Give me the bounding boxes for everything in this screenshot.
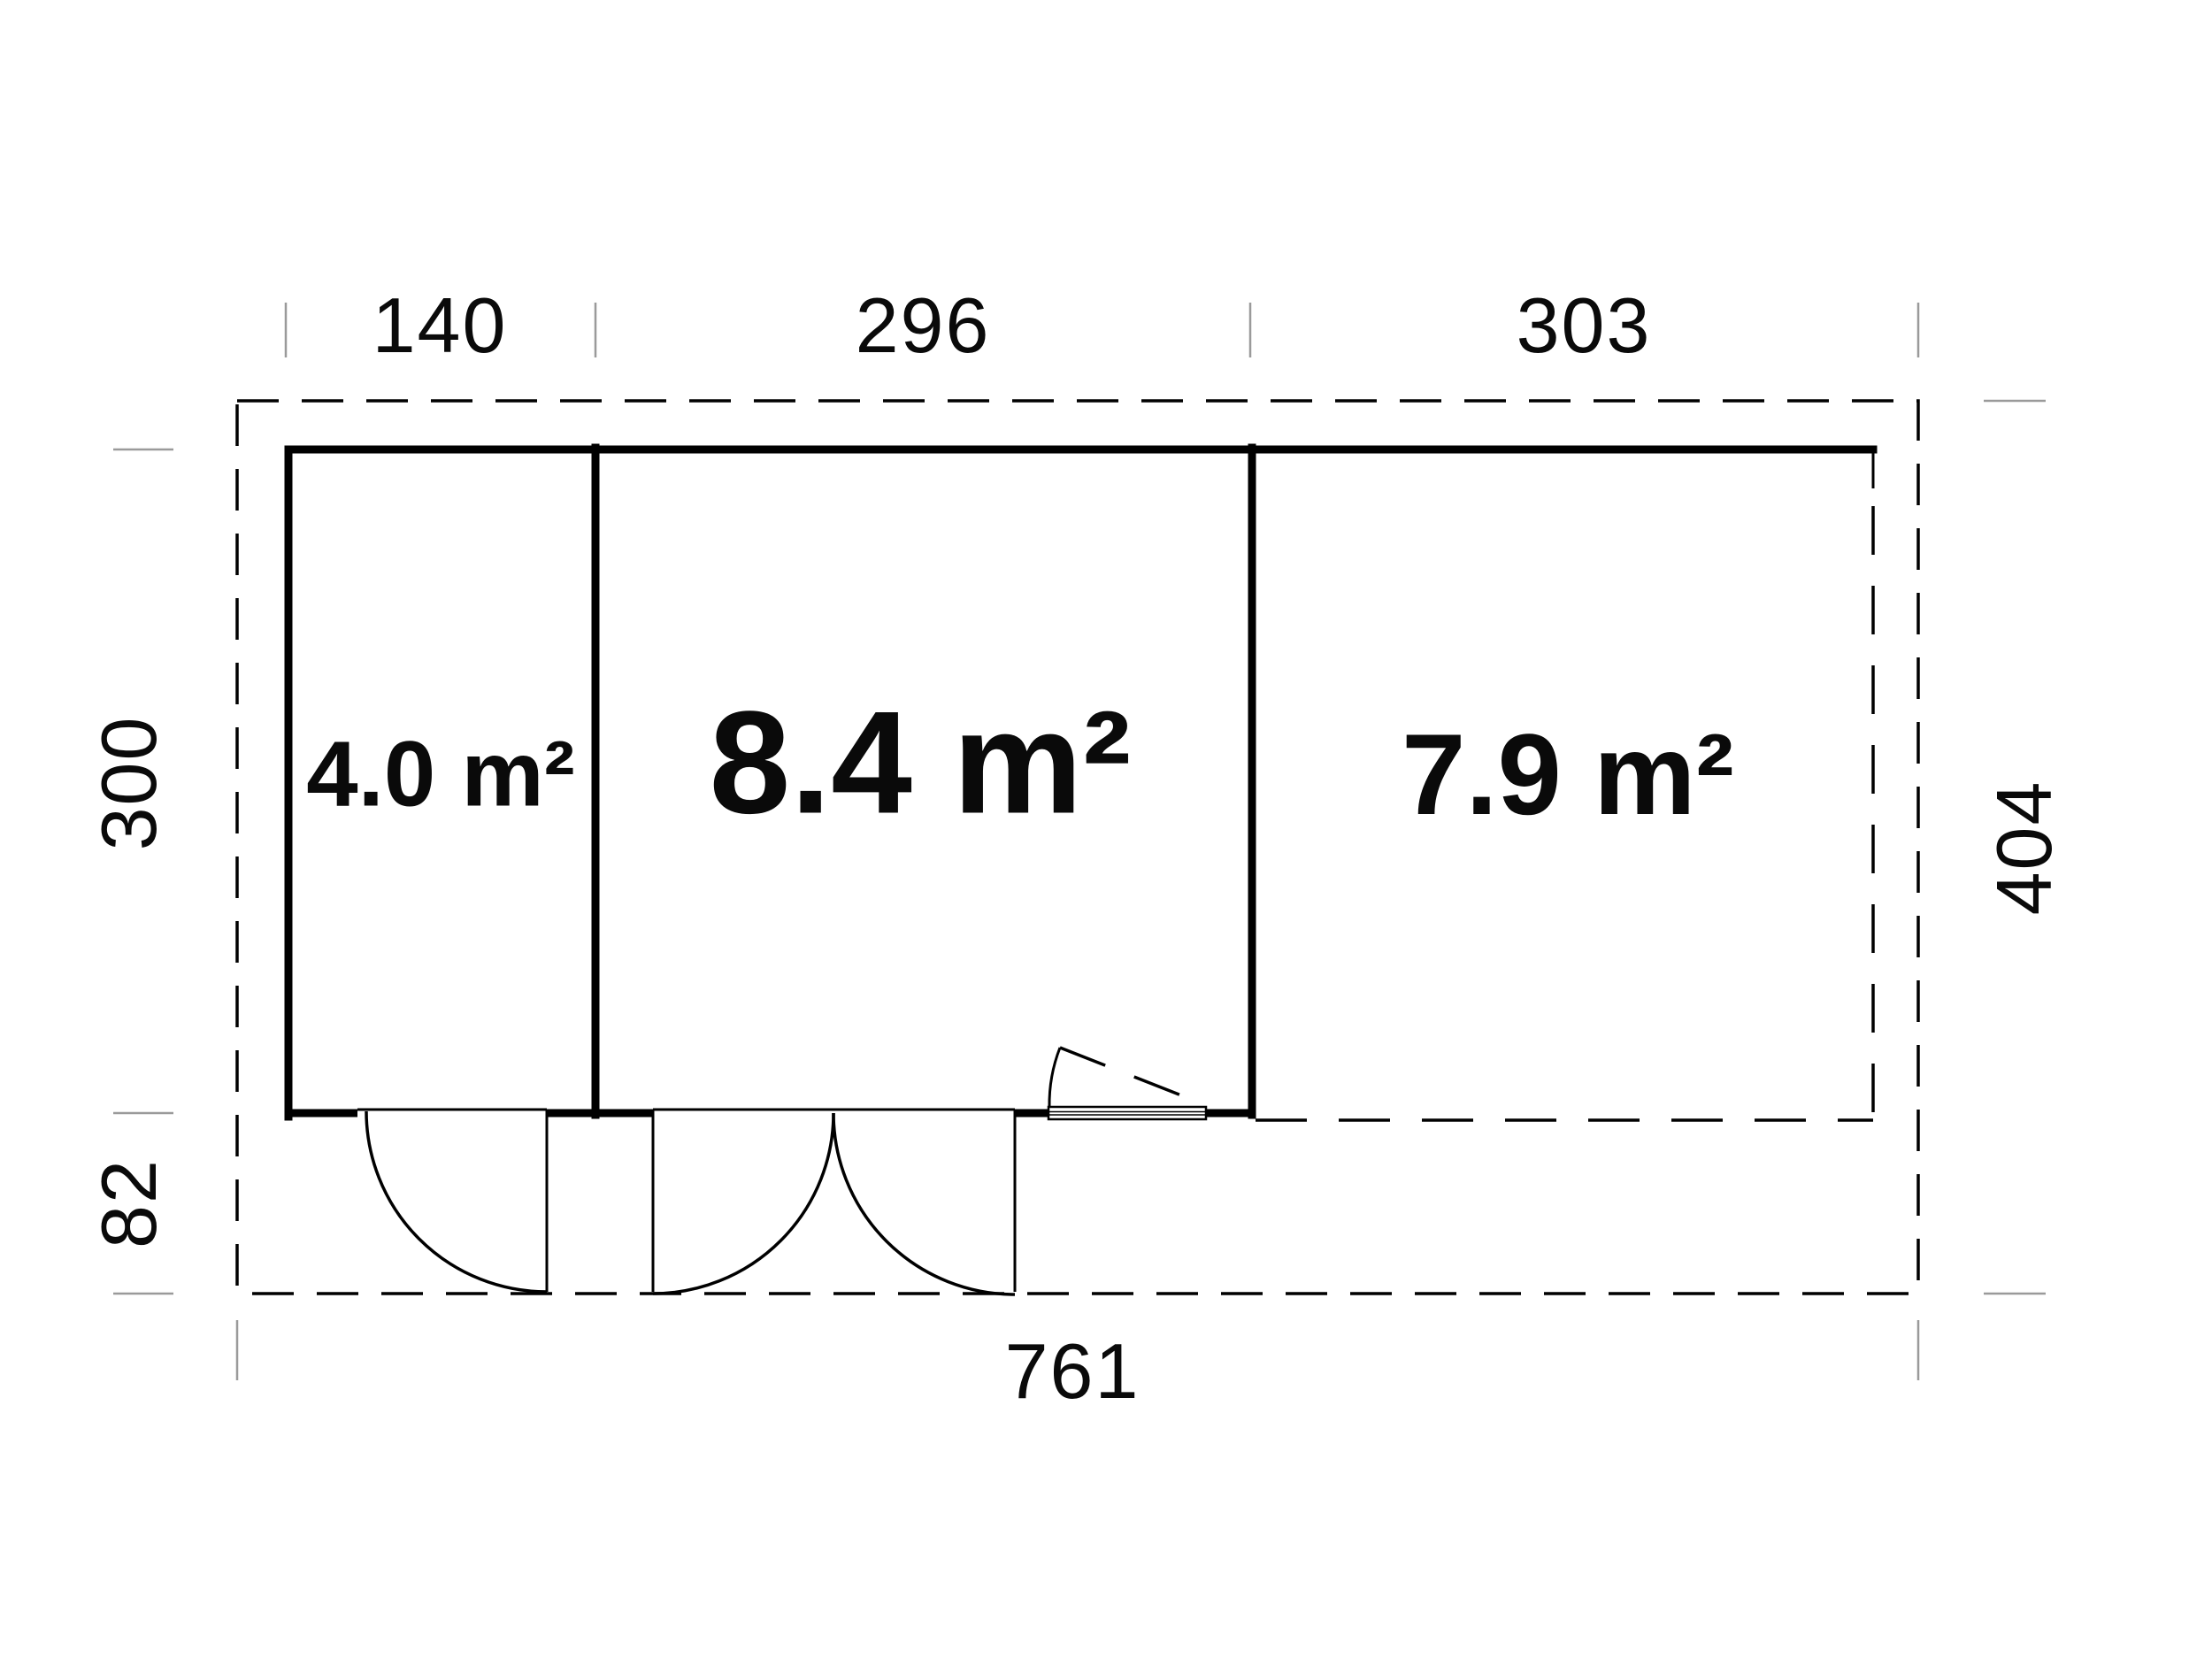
door3-sill-box (1048, 1107, 1206, 1119)
room-area-label-2: 8.4 m² (710, 690, 1132, 836)
room-area-label-1: 4.0 m² (306, 728, 574, 821)
door1-swing-arc (366, 1111, 547, 1292)
door2-right-swing-arc (833, 1113, 1015, 1294)
dimension-label-top-296: 296 (856, 287, 991, 365)
room-area-label-3: 7.9 m² (1402, 717, 1734, 832)
door3-swing-arc (1049, 1048, 1060, 1107)
outer-dashed-boundary (237, 401, 1918, 1294)
dimension-label-bottom-761: 761 (1005, 1333, 1141, 1410)
dimension-label-top-140: 140 (373, 287, 508, 365)
dimension-label-top-303: 303 (1517, 287, 1652, 365)
floor-plan-canvas: 140 296 303 300 82 404 761 4.0 m² 8.4 m²… (0, 0, 2212, 1659)
door2-left-swing-arc (653, 1113, 833, 1294)
dimension-label-right-404: 404 (1985, 780, 2063, 916)
dimension-label-left-300: 300 (90, 716, 168, 851)
dimension-label-left-82: 82 (90, 1158, 168, 1248)
door3-dashed-leaf (1060, 1048, 1206, 1105)
